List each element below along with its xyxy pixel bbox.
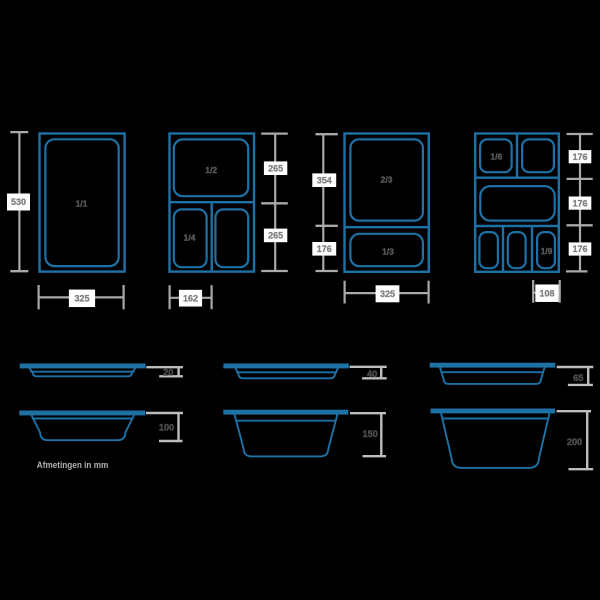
svg-text:65: 65 xyxy=(573,373,583,383)
svg-text:1/9: 1/9 xyxy=(541,246,553,256)
svg-text:325: 325 xyxy=(380,289,395,299)
svg-text:354: 354 xyxy=(317,175,332,185)
svg-text:20: 20 xyxy=(163,367,173,377)
svg-text:325: 325 xyxy=(74,294,89,304)
svg-text:200: 200 xyxy=(567,437,582,447)
svg-text:150: 150 xyxy=(363,429,378,439)
svg-text:530: 530 xyxy=(11,197,26,207)
svg-text:1/4: 1/4 xyxy=(183,232,195,242)
svg-text:1/3: 1/3 xyxy=(382,246,394,256)
svg-text:Afmetingen in mm: Afmetingen in mm xyxy=(37,460,109,471)
svg-text:176: 176 xyxy=(317,244,332,254)
svg-text:265: 265 xyxy=(268,231,283,241)
svg-text:176: 176 xyxy=(572,244,587,254)
svg-text:1/2: 1/2 xyxy=(205,165,217,175)
svg-text:1/1: 1/1 xyxy=(76,199,88,209)
svg-text:100: 100 xyxy=(159,422,174,432)
svg-text:265: 265 xyxy=(268,163,283,173)
svg-text:162: 162 xyxy=(183,293,198,303)
svg-text:176: 176 xyxy=(572,152,587,162)
svg-text:40: 40 xyxy=(367,369,377,379)
svg-text:2/3: 2/3 xyxy=(381,174,393,184)
svg-text:1/6: 1/6 xyxy=(490,152,502,162)
svg-text:176: 176 xyxy=(572,198,587,208)
svg-text:108: 108 xyxy=(539,288,554,298)
